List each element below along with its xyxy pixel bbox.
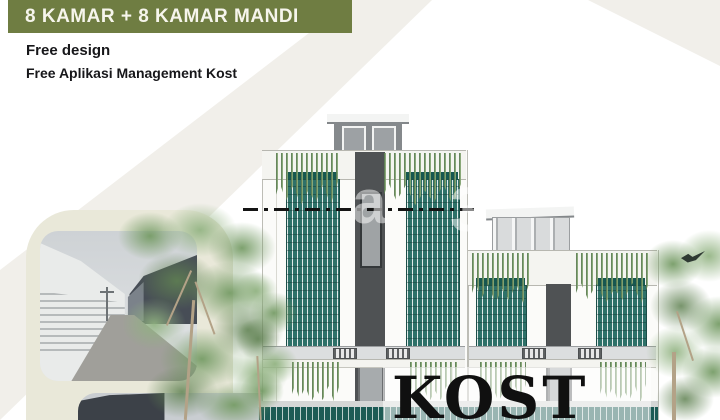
left-vent xyxy=(386,348,410,359)
watermark-letter: 3 xyxy=(450,180,484,242)
right-vent xyxy=(578,348,602,359)
right-dormer-body xyxy=(492,217,570,252)
watermark-letter: a xyxy=(352,172,386,234)
tree-trunk xyxy=(672,352,676,420)
left-dormer-window xyxy=(342,126,366,152)
feature-free-design: Free design xyxy=(26,42,110,59)
left-vent xyxy=(333,348,357,359)
left-dormer-body xyxy=(334,122,402,152)
left-dormer-window xyxy=(372,126,396,152)
tree-foliage xyxy=(656,376,714,420)
right-vent xyxy=(522,348,546,359)
banner-title: 8 KAMAR + 8 KAMAR MANDI xyxy=(8,6,299,28)
tree-foliage xyxy=(240,372,284,410)
feature-free-app: Free Aplikasi Management Kost xyxy=(26,65,237,81)
photo-power-crossarm xyxy=(100,291,114,293)
kost-sign: KOST xyxy=(392,369,588,420)
right-breeze-panel xyxy=(476,285,527,348)
flyer-canvas: 8 KAMAR + 8 KAMAR MANDI Free design Free… xyxy=(0,0,720,420)
header-banner: 8 KAMAR + 8 KAMAR MANDI xyxy=(8,0,352,33)
